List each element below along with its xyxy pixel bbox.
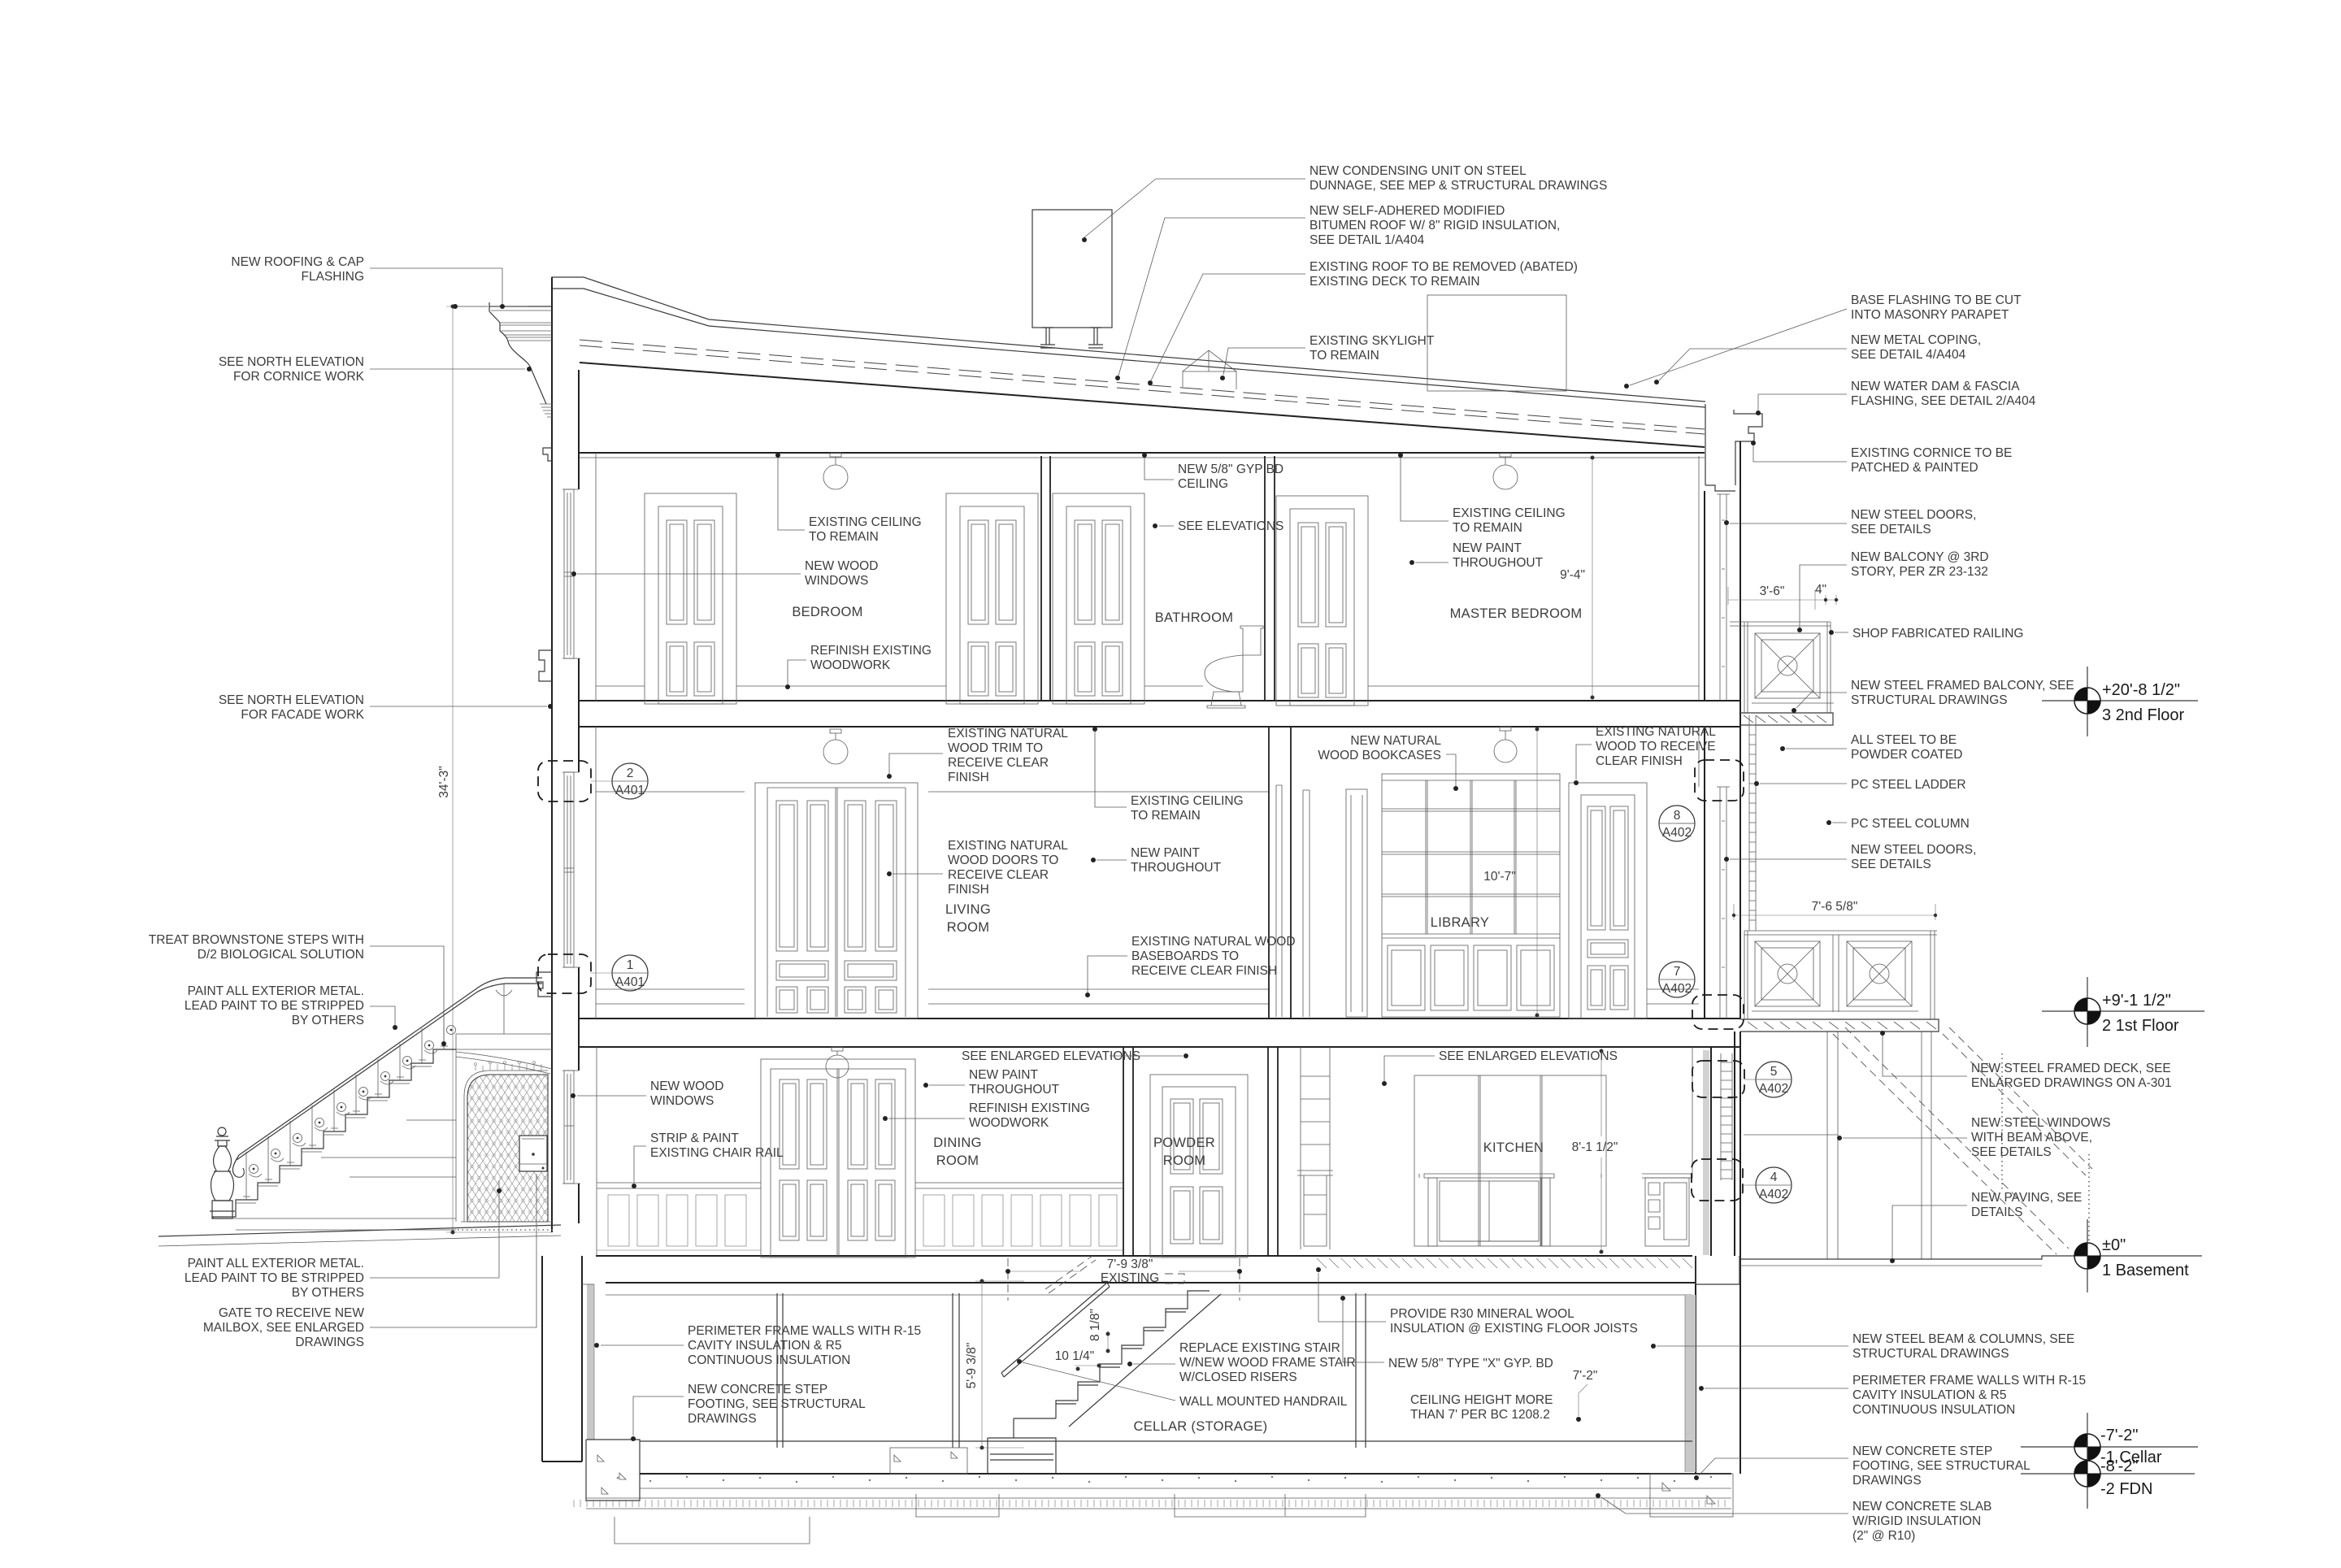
svg-text:GATE TO RECEIVE NEW: GATE TO RECEIVE NEW xyxy=(219,1306,365,1320)
svg-text:EXISTING: EXISTING xyxy=(1101,1271,1159,1285)
svg-text:2 1st Floor: 2 1st Floor xyxy=(2102,1017,2179,1035)
svg-text:FINISH: FINISH xyxy=(948,883,989,897)
svg-text:NEW PAINT: NEW PAINT xyxy=(1453,541,1522,555)
svg-text:W/NEW WOOD FRAME STAIR: W/NEW WOOD FRAME STAIR xyxy=(1179,1356,1356,1370)
svg-text:DRAWINGS: DRAWINGS xyxy=(1852,1474,1922,1488)
svg-text:POWDER COATED: POWDER COATED xyxy=(1851,748,1963,762)
svg-text:EXISTING NATURAL WOOD: EXISTING NATURAL WOOD xyxy=(1131,935,1296,949)
svg-text:NEW CONDENSING UNIT ON STEEL: NEW CONDENSING UNIT ON STEEL xyxy=(1309,164,1527,178)
svg-text:W/CLOSED RISERS: W/CLOSED RISERS xyxy=(1179,1370,1297,1384)
svg-text:ROOM: ROOM xyxy=(936,1153,979,1168)
svg-text:NEW WATER DAM & FASCIA: NEW WATER DAM & FASCIA xyxy=(1851,380,2020,393)
svg-text:STRIP & PAINT: STRIP & PAINT xyxy=(650,1131,739,1145)
svg-text:INSULATION @ EXISTING FLOOR JO: INSULATION @ EXISTING FLOOR JOISTS xyxy=(1390,1322,1638,1336)
svg-text:PC STEEL LADDER: PC STEEL LADDER xyxy=(1851,778,1966,792)
svg-text:FINISH: FINISH xyxy=(948,771,989,784)
svg-text:DRAWINGS: DRAWINGS xyxy=(295,1336,364,1349)
svg-text:STORY, PER ZR 23-132: STORY, PER ZR 23-132 xyxy=(1851,565,1988,579)
svg-text:A402: A402 xyxy=(1759,1188,1788,1201)
svg-text:ENLARGED DRAWINGS ON A-301: ENLARGED DRAWINGS ON A-301 xyxy=(1971,1076,2172,1090)
svg-text:LEAD PAINT TO BE STRIPPED: LEAD PAINT TO BE STRIPPED xyxy=(185,1271,364,1285)
svg-text:NEW PAINT: NEW PAINT xyxy=(1131,846,1200,860)
svg-text:NEW STEEL WINDOWS: NEW STEEL WINDOWS xyxy=(1971,1116,2111,1130)
svg-text:SHOP FABRICATED RAILING: SHOP FABRICATED RAILING xyxy=(1852,627,2023,641)
svg-text:10'-7": 10'-7" xyxy=(1483,870,1515,884)
svg-text:NEW STEEL DOORS,: NEW STEEL DOORS, xyxy=(1851,843,1976,857)
svg-text:CELLAR (STORAGE): CELLAR (STORAGE) xyxy=(1134,1419,1268,1434)
svg-text:EXISTING NATURAL: EXISTING NATURAL xyxy=(948,839,1068,853)
svg-text:FOOTING, SEE STRUCTURAL: FOOTING, SEE STRUCTURAL xyxy=(1852,1459,2030,1473)
svg-text:WALL MOUNTED HANDRAIL: WALL MOUNTED HANDRAIL xyxy=(1179,1395,1348,1409)
svg-text:THROUGHOUT: THROUGHOUT xyxy=(1453,556,1544,570)
svg-text:WITH BEAM ABOVE,: WITH BEAM ABOVE, xyxy=(1971,1131,2092,1145)
svg-text:WINDOWS: WINDOWS xyxy=(650,1094,714,1108)
svg-text:WOOD TO RECEIVE: WOOD TO RECEIVE xyxy=(1596,740,1716,754)
svg-text:7'-6 5/8": 7'-6 5/8" xyxy=(1812,900,1858,914)
svg-text:1: 1 xyxy=(627,958,634,972)
svg-text:SEE DETAILS: SEE DETAILS xyxy=(1851,523,1931,536)
svg-text:FOOTING, SEE STRUCTURAL: FOOTING, SEE STRUCTURAL xyxy=(688,1397,866,1411)
svg-text:PAINT ALL EXTERIOR METAL.: PAINT ALL EXTERIOR METAL. xyxy=(188,984,364,998)
svg-text:2: 2 xyxy=(627,767,634,780)
svg-text:NEW WOOD: NEW WOOD xyxy=(805,559,878,573)
svg-text:REFINISH EXISTING: REFINISH EXISTING xyxy=(969,1101,1090,1115)
svg-text:FOR FACADE WORK: FOR FACADE WORK xyxy=(241,708,364,722)
svg-text:EXISTING DECK TO REMAIN: EXISTING DECK TO REMAIN xyxy=(1309,275,1480,289)
svg-text:A401: A401 xyxy=(615,784,645,797)
svg-text:BASE FLASHING TO BE CUT: BASE FLASHING TO BE CUT xyxy=(1851,293,2022,307)
svg-text:FLASHING: FLASHING xyxy=(301,270,364,284)
svg-text:NEW 5/8" GYP BD: NEW 5/8" GYP BD xyxy=(1178,463,1283,476)
svg-text:EXISTING ROOF TO BE REMOVED (A: EXISTING ROOF TO BE REMOVED (ABATED) xyxy=(1309,260,1578,274)
svg-text:A402: A402 xyxy=(1662,982,1692,996)
svg-text:EXISTING CHAIR RAIL: EXISTING CHAIR RAIL xyxy=(650,1146,784,1160)
svg-text:7'-2": 7'-2" xyxy=(1573,1369,1598,1383)
svg-text:NEW PAVING, SEE: NEW PAVING, SEE xyxy=(1971,1191,2082,1205)
svg-text:-7'-2": -7'-2" xyxy=(2100,1427,2138,1444)
svg-text:KITCHEN: KITCHEN xyxy=(1483,1140,1544,1155)
svg-text:4: 4 xyxy=(1770,1171,1778,1184)
svg-text:-2 FDN: -2 FDN xyxy=(2100,1480,2152,1498)
svg-text:MASTER BEDROOM: MASTER BEDROOM xyxy=(1450,606,1583,621)
svg-text:EXISTING CORNICE TO BE: EXISTING CORNICE TO BE xyxy=(1851,446,2012,460)
svg-text:THAN 7' PER BC 1208.2: THAN 7' PER BC 1208.2 xyxy=(1410,1408,1550,1422)
svg-text:1 Basement: 1 Basement xyxy=(2102,1262,2189,1279)
svg-text:+9'-1 1/2": +9'-1 1/2" xyxy=(2102,992,2171,1010)
svg-text:BASEBOARDS TO: BASEBOARDS TO xyxy=(1131,949,1239,963)
svg-text:SEE DETAIL 1/A404: SEE DETAIL 1/A404 xyxy=(1309,233,1425,247)
svg-text:RECEIVE CLEAR: RECEIVE CLEAR xyxy=(948,756,1049,770)
svg-text:FLASHING, SEE DETAIL 2/A404: FLASHING, SEE DETAIL 2/A404 xyxy=(1851,394,2036,408)
svg-text:STRUCTURAL DRAWINGS: STRUCTURAL DRAWINGS xyxy=(1852,1347,2009,1361)
svg-text:SEE DETAILS: SEE DETAILS xyxy=(1971,1145,2052,1159)
svg-text:EXISTING CEILING: EXISTING CEILING xyxy=(809,515,922,529)
svg-text:THROUGHOUT: THROUGHOUT xyxy=(1131,861,1222,875)
svg-text:NEW STEEL FRAMED DECK, SEE: NEW STEEL FRAMED DECK, SEE xyxy=(1971,1062,2171,1075)
svg-text:D/2 BIOLOGICAL SOLUTION: D/2 BIOLOGICAL SOLUTION xyxy=(198,948,364,962)
svg-text:NEW WOOD: NEW WOOD xyxy=(650,1079,723,1093)
svg-text:NEW CONCRETE STEP: NEW CONCRETE STEP xyxy=(688,1383,827,1396)
svg-text:THROUGHOUT: THROUGHOUT xyxy=(969,1083,1060,1097)
svg-text:BY OTHERS: BY OTHERS xyxy=(292,1014,364,1027)
svg-text:7'-9 3/8": 7'-9 3/8" xyxy=(1107,1257,1153,1271)
svg-text:NEW STEEL DOORS,: NEW STEEL DOORS, xyxy=(1851,508,1976,522)
svg-text:A402: A402 xyxy=(1759,1082,1788,1096)
svg-text:LEAD PAINT TO BE STRIPPED: LEAD PAINT TO BE STRIPPED xyxy=(185,999,364,1013)
svg-text:BITUMEN ROOF W/ 8" RIGID INSUL: BITUMEN ROOF W/ 8" RIGID INSULATION, xyxy=(1309,219,1560,232)
svg-text:RECEIVE CLEAR FINISH: RECEIVE CLEAR FINISH xyxy=(1131,964,1277,978)
svg-text:NEW CONCRETE SLAB: NEW CONCRETE SLAB xyxy=(1852,1500,1991,1514)
svg-text:WOODWORK: WOODWORK xyxy=(969,1116,1049,1130)
svg-text:W/RIGID INSULATION: W/RIGID INSULATION xyxy=(1852,1514,1981,1528)
svg-text:EXISTING NATURAL: EXISTING NATURAL xyxy=(1596,725,1716,739)
svg-text:BY OTHERS: BY OTHERS xyxy=(292,1286,364,1300)
svg-text:SEE NORTH ELEVATION: SEE NORTH ELEVATION xyxy=(219,693,364,707)
svg-text:RECEIVE CLEAR: RECEIVE CLEAR xyxy=(948,868,1049,882)
svg-text:EXISTING CEILING: EXISTING CEILING xyxy=(1453,506,1566,520)
svg-text:POWDER: POWDER xyxy=(1153,1136,1215,1150)
svg-text:NEW BALCONY @ 3RD: NEW BALCONY @ 3RD xyxy=(1851,550,1989,564)
svg-text:NEW CONCRETE STEP: NEW CONCRETE STEP xyxy=(1852,1444,1992,1458)
svg-text:PATCHED & PAINTED: PATCHED & PAINTED xyxy=(1851,461,1978,475)
svg-text:EXISTING SKYLIGHT: EXISTING SKYLIGHT xyxy=(1309,334,1435,348)
svg-text:NEW 5/8" TYPE "X" GYP. BD: NEW 5/8" TYPE "X" GYP. BD xyxy=(1388,1357,1553,1370)
svg-text:(2" @ R10): (2" @ R10) xyxy=(1852,1529,1915,1543)
svg-text:CONTINUOUS INSULATION: CONTINUOUS INSULATION xyxy=(688,1353,850,1367)
svg-text:9'-4": 9'-4" xyxy=(1560,568,1585,582)
svg-text:TREAT BROWNSTONE STEPS WITH: TREAT BROWNSTONE STEPS WITH xyxy=(149,933,364,947)
svg-text:CONTINUOUS INSULATION: CONTINUOUS INSULATION xyxy=(1852,1403,2015,1417)
svg-text:ROOM: ROOM xyxy=(947,920,990,935)
svg-text:4": 4" xyxy=(1815,583,1826,597)
svg-text:REFINISH EXISTING: REFINISH EXISTING xyxy=(810,644,932,658)
svg-text:BEDROOM: BEDROOM xyxy=(792,605,862,619)
svg-text:ROOM: ROOM xyxy=(1163,1153,1206,1168)
svg-text:TO REMAIN: TO REMAIN xyxy=(1131,809,1201,823)
svg-text:3'-6": 3'-6" xyxy=(1760,584,1785,598)
svg-text:PC STEEL COLUMN: PC STEEL COLUMN xyxy=(1851,817,1970,831)
svg-text:MAILBOX, SEE ENLARGED: MAILBOX, SEE ENLARGED xyxy=(203,1321,364,1335)
svg-text:PERIMETER FRAME WALLS WITH R-1: PERIMETER FRAME WALLS WITH R-15 xyxy=(688,1324,921,1338)
svg-text:TO REMAIN: TO REMAIN xyxy=(809,530,879,544)
svg-text:SEE DETAILS: SEE DETAILS xyxy=(1851,858,1931,871)
svg-text:8 1/8": 8 1/8" xyxy=(1088,1309,1102,1341)
svg-text:WOOD DOORS TO: WOOD DOORS TO xyxy=(948,853,1058,867)
svg-text:-8'-2": -8'-2" xyxy=(2100,1457,2138,1475)
svg-text:TO REMAIN: TO REMAIN xyxy=(1453,521,1522,535)
svg-text:EXISTING CEILING: EXISTING CEILING xyxy=(1131,794,1244,808)
svg-text:34'-3": 34'-3" xyxy=(437,766,451,797)
svg-text:DINING: DINING xyxy=(933,1136,982,1150)
svg-text:SEE DETAIL 4/A404: SEE DETAIL 4/A404 xyxy=(1851,348,1966,362)
svg-text:DUNNAGE, SEE MEP & STRUCTURAL: DUNNAGE, SEE MEP & STRUCTURAL DRAWINGS xyxy=(1309,179,1607,193)
svg-text:STRUCTURAL DRAWINGS: STRUCTURAL DRAWINGS xyxy=(1851,693,2008,707)
svg-text:PERIMETER FRAME WALLS WITH R-1: PERIMETER FRAME WALLS WITH R-15 xyxy=(1852,1374,2086,1388)
svg-text:SEE ENLARGED ELEVATIONS: SEE ENLARGED ELEVATIONS xyxy=(1439,1049,1618,1063)
svg-text:EXISTING NATURAL: EXISTING NATURAL xyxy=(948,727,1068,741)
svg-text:CEILING: CEILING xyxy=(1178,477,1228,491)
svg-text:NEW METAL COPING,: NEW METAL COPING, xyxy=(1851,333,1981,347)
svg-text:±0": ±0" xyxy=(2102,1236,2126,1254)
svg-text:BATHROOM: BATHROOM xyxy=(1155,610,1234,625)
svg-text:NEW ROOFING & CAP: NEW ROOFING & CAP xyxy=(231,255,364,269)
svg-text:WOOD TRIM TO: WOOD TRIM TO xyxy=(948,741,1043,755)
svg-text:WOOD BOOKCASES: WOOD BOOKCASES xyxy=(1318,749,1441,762)
svg-text:CEILING HEIGHT MORE: CEILING HEIGHT MORE xyxy=(1410,1393,1553,1407)
svg-text:NEW NATURAL: NEW NATURAL xyxy=(1350,734,1441,748)
svg-text:8'-1 1/2": 8'-1 1/2" xyxy=(1572,1140,1618,1154)
svg-text:5: 5 xyxy=(1770,1065,1778,1079)
svg-text:CAVITY INSULATION & R5: CAVITY INSULATION & R5 xyxy=(688,1339,842,1353)
svg-text:INTO MASONRY PARAPET: INTO MASONRY PARAPET xyxy=(1851,308,2009,322)
svg-text:ALL STEEL TO BE: ALL STEEL TO BE xyxy=(1851,733,1957,747)
svg-text:CLEAR FINISH: CLEAR FINISH xyxy=(1596,754,1683,768)
svg-text:FOR CORNICE WORK: FOR CORNICE WORK xyxy=(233,370,365,384)
svg-text:CAVITY INSULATION & R5: CAVITY INSULATION & R5 xyxy=(1852,1388,2007,1402)
svg-text:NEW STEEL BEAM & COLUMNS, SEE: NEW STEEL BEAM & COLUMNS, SEE xyxy=(1852,1332,2074,1346)
svg-text:NEW SELF-ADHERED MODIFIED: NEW SELF-ADHERED MODIFIED xyxy=(1309,204,1505,218)
svg-text:3 2nd Floor: 3 2nd Floor xyxy=(2102,706,2185,724)
svg-text:PROVIDE R30 MINERAL WOOL: PROVIDE R30 MINERAL WOOL xyxy=(1390,1307,1574,1321)
svg-text:SEE ELEVATIONS: SEE ELEVATIONS xyxy=(1178,519,1283,533)
svg-text:WOODWORK: WOODWORK xyxy=(810,658,891,672)
svg-text:SEE NORTH ELEVATION: SEE NORTH ELEVATION xyxy=(219,355,364,369)
svg-text:PAINT ALL EXTERIOR METAL.: PAINT ALL EXTERIOR METAL. xyxy=(188,1257,364,1270)
svg-text:10 1/4": 10 1/4" xyxy=(1055,1349,1095,1363)
svg-text:8: 8 xyxy=(1674,809,1681,823)
svg-text:7: 7 xyxy=(1674,965,1681,979)
svg-text:DETAILS: DETAILS xyxy=(1971,1205,2022,1219)
svg-text:A402: A402 xyxy=(1662,826,1692,840)
svg-text:NEW STEEL FRAMED BALCONY, SEE: NEW STEEL FRAMED BALCONY, SEE xyxy=(1851,679,2074,693)
svg-text:+20'-8 1/2": +20'-8 1/2" xyxy=(2102,681,2180,699)
svg-text:A401: A401 xyxy=(615,975,645,989)
svg-text:NEW PAINT: NEW PAINT xyxy=(969,1068,1038,1082)
svg-text:5'-9 3/8": 5'-9 3/8" xyxy=(965,1343,979,1389)
svg-text:REPLACE EXISTING STAIR: REPLACE EXISTING STAIR xyxy=(1179,1341,1340,1355)
svg-text:WINDOWS: WINDOWS xyxy=(805,574,868,588)
svg-text:TO REMAIN: TO REMAIN xyxy=(1309,349,1379,363)
svg-text:SEE ENLARGED ELEVATIONS: SEE ENLARGED ELEVATIONS xyxy=(962,1049,1140,1063)
svg-text:LIBRARY: LIBRARY xyxy=(1431,915,1489,930)
svg-text:DRAWINGS: DRAWINGS xyxy=(688,1412,757,1426)
svg-text:LIVING: LIVING xyxy=(945,902,991,917)
